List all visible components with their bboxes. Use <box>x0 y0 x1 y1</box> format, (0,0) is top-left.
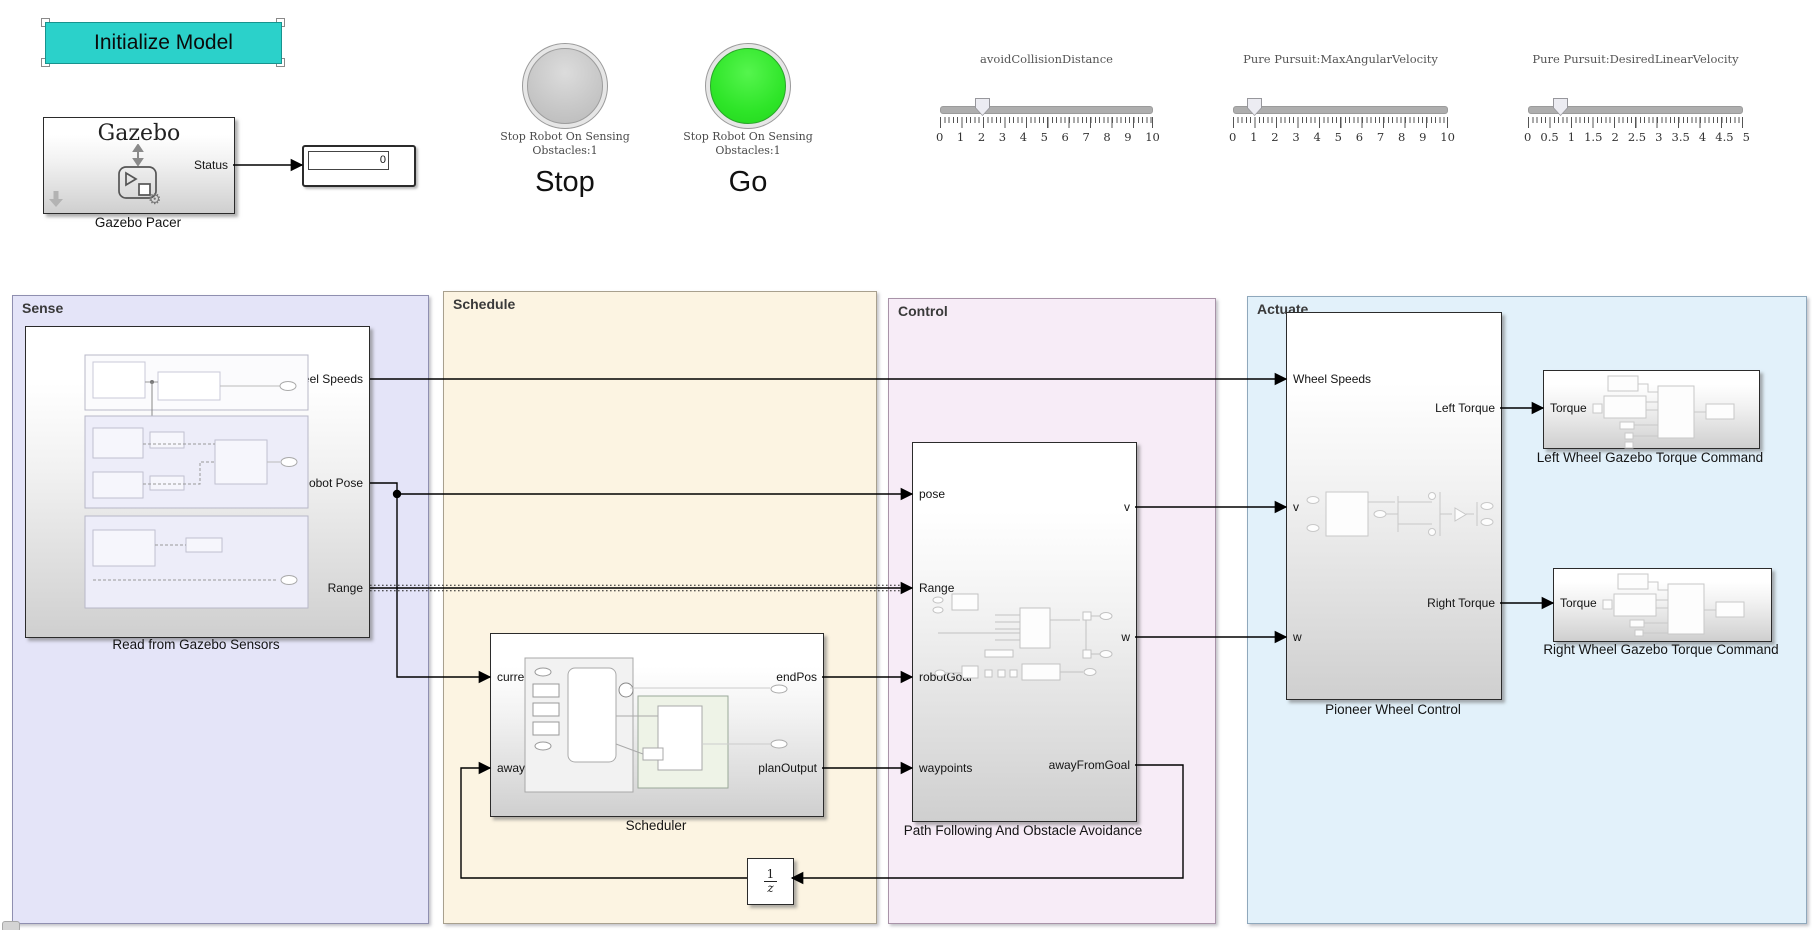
scroll-pill[interactable] <box>2 921 20 930</box>
left-wheel-torque-block[interactable]: Torque <box>1543 370 1760 449</box>
pioneer-wheel-control-block[interactable]: Wheel Speeds v w Left Torque Right Torqu… <box>1286 312 1502 700</box>
tick-label: 3 <box>999 130 1006 144</box>
right-wheel-torque-block[interactable]: Torque <box>1553 568 1772 642</box>
tick-label: 1.5 <box>1584 130 1602 144</box>
slider-ruler <box>940 117 1153 128</box>
tick-label: 4 <box>1020 130 1027 144</box>
read-gazebo-sensors-caption: Read from Gazebo Sensors <box>46 637 346 652</box>
port-torque-right: Torque <box>1560 596 1597 610</box>
tick-label: 10 <box>1440 130 1455 144</box>
area-control-label: Control <box>898 303 948 319</box>
slider-desired-linear-velocity[interactable]: Pure Pursuit:DesiredLinearVelocity 00.51… <box>1528 52 1743 144</box>
tick-label: 8 <box>1398 130 1405 144</box>
tick-label: 5 <box>1041 130 1048 144</box>
tick-label: 1 <box>1568 130 1575 144</box>
right-wheel-torque-caption: Right Wheel Gazebo Torque Command <box>1496 642 1812 657</box>
scheduler-caption: Scheduler <box>556 818 756 833</box>
slider-title: avoidCollisionDistance <box>980 52 1113 66</box>
gazebo-pacer-block[interactable]: Gazebo ⚙ Status <box>43 117 235 214</box>
tick-label: 8 <box>1103 130 1110 144</box>
pioneer-wheel-control-caption: Pioneer Wheel Control <box>1263 702 1523 717</box>
port-left-torque: Left Torque <box>1435 401 1495 415</box>
lamp-go[interactable] <box>705 43 791 129</box>
tick-label: 2.5 <box>1628 130 1646 144</box>
port-v-out: v <box>1124 500 1130 514</box>
port-torque-left: Torque <box>1550 401 1587 415</box>
gazebo-pacer-title: Gazebo <box>44 121 234 146</box>
initialize-model-button[interactable]: Initialize Model <box>45 22 282 64</box>
slider-ruler <box>1528 117 1743 128</box>
tick-label: 10 <box>1145 130 1160 144</box>
tick-label: 3 <box>1655 130 1662 144</box>
read-gazebo-sensors-block[interactable]: Wheel Speeds Robot Pose Range <box>25 326 370 638</box>
slider-ruler <box>1233 117 1448 128</box>
tick-label: 2 <box>978 130 985 144</box>
port-away-from-goal-out: awayFromGoal <box>1049 758 1130 772</box>
port-robot-goal: robotGoal <box>919 670 972 684</box>
slider-avoid-collision-distance[interactable]: avoidCollisionDistance 012345678910 <box>940 52 1153 144</box>
status-display-value: 0 <box>308 151 389 170</box>
area-sense-label: Sense <box>22 300 63 316</box>
tick-label: 3 <box>1292 130 1299 144</box>
tick-label: 0 <box>1524 130 1531 144</box>
lamp-stop-disc <box>527 48 603 124</box>
tick-label: 4.5 <box>1715 130 1733 144</box>
gazebo-pacer-icon: ⚙ <box>110 144 170 206</box>
tick-label: 6 <box>1356 130 1363 144</box>
gear-icon: ⚙ <box>148 191 161 206</box>
tick-label: 7 <box>1377 130 1384 144</box>
down-arrow-icon <box>49 191 63 208</box>
port-range: Range <box>328 581 363 595</box>
path-following-caption: Path Following And Obstacle Avoidance <box>858 823 1188 838</box>
tick-label: 4 <box>1314 130 1321 144</box>
slider-track[interactable] <box>1233 106 1448 114</box>
lamp-caption-line: Obstacles:1 <box>638 144 858 158</box>
tick-label: 9 <box>1124 130 1131 144</box>
slider-title: Pure Pursuit:DesiredLinearVelocity <box>1532 52 1738 66</box>
port-robot-pose: Robot Pose <box>300 476 363 490</box>
lamp-caption-line: Stop Robot On Sensing <box>638 130 858 144</box>
tick-label: 1 <box>1250 130 1257 144</box>
gazebo-pacer-caption: Gazebo Pacer <box>38 215 238 230</box>
port-range-in: Range <box>919 581 954 595</box>
simulink-canvas[interactable]: Sense Schedule Control Actuate Initializ… <box>0 0 1812 930</box>
lamp-go-caption: Stop Robot On Sensing Obstacles:1 <box>638 130 858 157</box>
tick-label: 1 <box>957 130 964 144</box>
tick-label: 2 <box>1611 130 1618 144</box>
tick-label: 0.5 <box>1540 130 1558 144</box>
tick-label: 0 <box>1229 130 1236 144</box>
port-current-pose: currentPose <box>497 670 562 684</box>
lamp-go-disc <box>710 48 786 124</box>
port-w-in: w <box>1293 630 1302 644</box>
unit-delay-denominator: z <box>764 882 778 895</box>
port-plan-output: planOutput <box>758 761 817 775</box>
port-v-in: v <box>1293 500 1299 514</box>
unit-delay-block[interactable]: 1 z <box>747 858 794 905</box>
port-status: Status <box>194 158 228 172</box>
tick-label: 6 <box>1062 130 1069 144</box>
slider-max-angular-velocity[interactable]: Pure Pursuit:MaxAngularVelocity 01234567… <box>1233 52 1448 144</box>
tick-label: 9 <box>1419 130 1426 144</box>
area-schedule-label: Schedule <box>453 296 515 312</box>
port-end-pos: endPos <box>776 670 817 684</box>
slider-tick-labels: 00.511.522.533.544.55 <box>1524 130 1750 144</box>
port-waypoints: waypoints <box>919 761 972 775</box>
tick-label: 5 <box>1335 130 1342 144</box>
status-display-block[interactable]: 0 <box>302 145 416 187</box>
scheduler-block[interactable]: currentPose awayFromGoal endPos planOutp… <box>490 633 824 817</box>
tick-label: 2 <box>1271 130 1278 144</box>
port-right-torque: Right Torque <box>1427 596 1495 610</box>
slider-tick-labels: 012345678910 <box>936 130 1160 144</box>
tick-label: 5 <box>1743 130 1750 144</box>
lamp-stop[interactable] <box>522 43 608 129</box>
port-wheel-speeds: Wheel Speeds <box>285 372 363 386</box>
tick-label: 4 <box>1699 130 1706 144</box>
unit-delay-fraction: 1 z <box>764 868 778 894</box>
tick-label: 0 <box>936 130 943 144</box>
slider-track[interactable] <box>940 106 1153 114</box>
port-wheel-speeds-in: Wheel Speeds <box>1293 372 1371 386</box>
slider-tick-labels: 012345678910 <box>1229 130 1455 144</box>
port-away-from-goal: awayFromGoal <box>497 761 578 775</box>
path-following-block[interactable]: pose Range robotGoal waypoints v w awayF… <box>912 442 1137 822</box>
tick-label: 7 <box>1082 130 1089 144</box>
slider-title: Pure Pursuit:MaxAngularVelocity <box>1243 52 1438 66</box>
left-wheel-torque-caption: Left Wheel Gazebo Torque Command <box>1485 450 1812 465</box>
tick-label: 3.5 <box>1672 130 1690 144</box>
unit-delay-numerator: 1 <box>764 868 778 882</box>
port-pose: pose <box>919 487 945 501</box>
lamp-go-label: Go <box>638 166 858 199</box>
port-w-out: w <box>1121 630 1130 644</box>
